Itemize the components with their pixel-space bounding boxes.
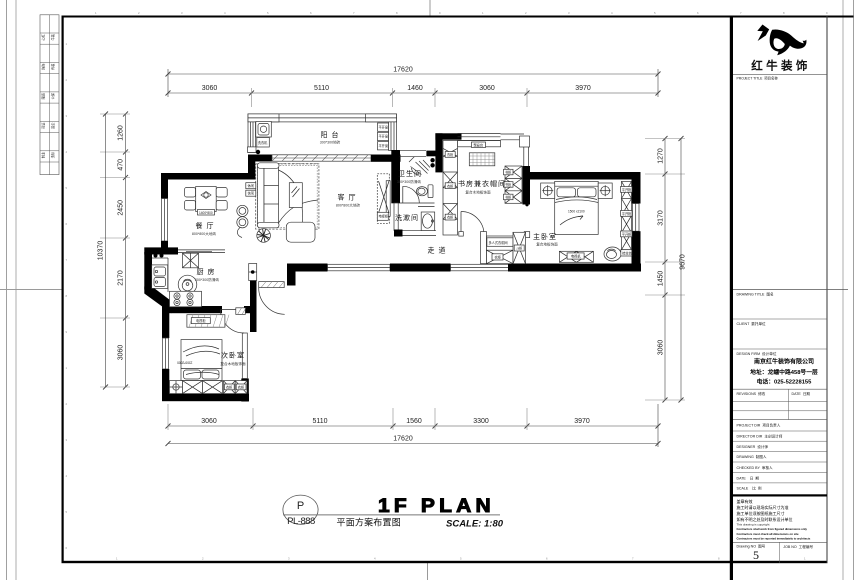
svg-text:REVISIONS 修改: REVISIONS 修改 <box>737 391 766 396</box>
svg-text:3060: 3060 <box>657 340 664 356</box>
svg-text:休闲: 休闲 <box>248 191 254 196</box>
svg-text:衣柜: 衣柜 <box>447 152 454 157</box>
svg-text:Contractors shall work from fi: Contractors shall work from figured dime… <box>737 527 808 531</box>
svg-text:DIRECTOR DIR 主创设计师: DIRECTOR DIR 主创设计师 <box>737 434 783 439</box>
svg-text:1260: 1260 <box>118 125 125 141</box>
svg-text:1270: 1270 <box>657 148 664 164</box>
svg-text:800*800大地砖: 800*800大地砖 <box>336 203 361 208</box>
svg-text:Contractors must be reported i: Contractors must be reported immediately… <box>737 537 811 541</box>
svg-text:平面方案布置图: 平面方案布置图 <box>337 517 401 528</box>
svg-text:造标: 造标 <box>50 151 55 158</box>
svg-text:地址：龙蟠中路458号一层: 地址：龙蟠中路458号一层 <box>750 368 818 376</box>
svg-text:5: 5 <box>753 548 759 562</box>
svg-text:书柜: 书柜 <box>505 182 512 187</box>
svg-text:复合木地板饰面: 复合木地板饰面 <box>465 190 491 195</box>
svg-text:衣柜: 衣柜 <box>226 385 233 390</box>
svg-text:牛装: 牛装 <box>50 33 55 40</box>
svg-text:电视柜: 电视柜 <box>196 318 206 323</box>
svg-text:衣柜: 衣柜 <box>495 255 502 260</box>
svg-text:平开柜: 平开柜 <box>622 187 632 192</box>
svg-text:南京红牛装饰有限公司: 南京红牛装饰有限公司 <box>754 358 814 366</box>
svg-text:书柜: 书柜 <box>505 195 512 200</box>
svg-text:300*300防滑砖: 300*300防滑砖 <box>397 179 422 184</box>
svg-text:厨 房: 厨 房 <box>197 267 216 276</box>
svg-text:休闲: 休闲 <box>248 183 254 188</box>
svg-text:1560: 1560 <box>406 418 422 425</box>
svg-text:PROJECT TITLE 项目名称: PROJECT TITLE 项目名称 <box>737 76 779 81</box>
svg-text:施工时请以现场实际尺寸为准: 施工时请以现场实际尺寸为准 <box>737 504 789 510</box>
svg-text:5110: 5110 <box>314 85 329 92</box>
svg-text:1400*800: 1400*800 <box>199 211 213 215</box>
svg-text:心红: 心红 <box>41 33 46 40</box>
svg-text:走 道: 走 道 <box>428 246 447 255</box>
svg-text:300*300防滑砖: 300*300防滑砖 <box>195 277 220 282</box>
svg-text:PL-888: PL-888 <box>287 516 315 527</box>
svg-text:平开柜: 平开柜 <box>622 232 632 237</box>
svg-text:客 厅: 客 厅 <box>338 193 357 202</box>
svg-text:DRAWING TITLE 图名: DRAWING TITLE 图名 <box>737 292 775 297</box>
svg-text:SCALE: 1:80: SCALE: 1:80 <box>446 519 504 530</box>
svg-text:衣柜: 衣柜 <box>447 183 454 188</box>
svg-text:公保: 公保 <box>50 92 55 99</box>
svg-text:DESIGNER 设计师: DESIGNER 设计师 <box>737 444 769 449</box>
svg-text:300*300地砖: 300*300地砖 <box>320 140 341 145</box>
svg-text:复合木地板饰面: 复合木地板饰面 <box>220 361 246 366</box>
svg-text:平开窗: 平开窗 <box>379 134 389 139</box>
svg-text:阳 台: 阳 台 <box>321 130 340 139</box>
svg-text:红牛装饰: 红牛装饰 <box>751 59 811 73</box>
svg-text:电话：025-52228155: 电话：025-52228155 <box>757 378 813 386</box>
svg-text:9670: 9670 <box>680 254 687 270</box>
svg-text:书房兼衣帽间: 书房兼衣帽间 <box>458 179 506 188</box>
svg-text:书柜: 书柜 <box>505 170 512 175</box>
svg-text:3060: 3060 <box>118 345 125 361</box>
svg-text:CHECKED BY 审核人: CHECKED BY 审核人 <box>737 465 774 470</box>
svg-text:施工单位须按图纸施工尺寸: 施工单位须按图纸施工尺寸 <box>737 510 785 516</box>
svg-text:2450: 2450 <box>118 200 125 216</box>
svg-text:SCALE 比 例: SCALE 比 例 <box>737 486 762 491</box>
svg-text:限质: 限质 <box>41 92 46 99</box>
svg-text:多人式衣帽间: 多人式衣帽间 <box>489 240 508 245</box>
svg-text:17620: 17620 <box>393 67 413 74</box>
svg-text:洗衣机: 洗衣机 <box>258 140 268 145</box>
svg-text:CLIENT 委托单位: CLIENT 委托单位 <box>737 321 767 326</box>
svg-text:3300: 3300 <box>473 418 489 425</box>
svg-text:次卧室: 次卧室 <box>221 351 245 360</box>
svg-text:3970: 3970 <box>574 418 590 425</box>
svg-text:This drawing is copyright: This drawing is copyright <box>737 523 770 527</box>
svg-text:1500*2000: 1500*2000 <box>177 360 193 364</box>
svg-text:监企: 监企 <box>50 122 55 129</box>
svg-text:平开窗: 平开窗 <box>379 124 389 129</box>
svg-text:Drawing NO 图号: Drawing NO 图号 <box>737 544 766 549</box>
svg-text:DATE 日 期: DATE 日 期 <box>737 475 760 480</box>
svg-text:复合地板饰面: 复合地板饰面 <box>536 242 558 247</box>
svg-text:电视机: 电视机 <box>571 254 581 259</box>
svg-text:飘窗台: 飘窗台 <box>474 142 484 147</box>
svg-text:P: P <box>297 500 304 512</box>
svg-text:3170: 3170 <box>657 210 664 226</box>
svg-text:2170: 2170 <box>118 270 125 286</box>
svg-text:3060: 3060 <box>201 418 217 425</box>
svg-text:衣柜: 衣柜 <box>447 215 454 220</box>
svg-text:DATE 日期: DATE 日期 <box>792 391 811 396</box>
svg-text:餐 厅: 餐 厅 <box>196 221 215 230</box>
svg-text:平开柜: 平开柜 <box>622 211 632 216</box>
svg-text:DESIGN FIRM 设计单位: DESIGN FIRM 设计单位 <box>737 351 777 356</box>
svg-text:有装: 有装 <box>50 63 55 70</box>
svg-text:斗柜: 斗柜 <box>516 246 523 251</box>
svg-text:制业: 制业 <box>41 152 46 158</box>
svg-text:1F PLAN: 1F PLAN <box>378 496 495 517</box>
svg-text:470: 470 <box>118 159 125 171</box>
svg-text:3970: 3970 <box>575 85 591 92</box>
svg-text:1460: 1460 <box>407 85 423 92</box>
svg-text:如有不明之处及时联系设计单位: 如有不明之处及时联系设计单位 <box>737 516 793 522</box>
svg-text:饰饰: 饰饰 <box>41 64 46 70</box>
svg-text:衣柜: 衣柜 <box>238 385 245 390</box>
svg-text:PROJECT DIR 项目负责人: PROJECT DIR 项目负责人 <box>737 422 781 427</box>
svg-text:盖章有效: 盖章有效 <box>737 498 753 504</box>
svg-text:800*800大地砖: 800*800大地砖 <box>192 231 217 236</box>
svg-text:3060: 3060 <box>202 85 218 92</box>
svg-text:卫生间: 卫生间 <box>398 169 422 178</box>
svg-text:梳妆台: 梳妆台 <box>622 251 632 256</box>
svg-text:平开窗: 平开窗 <box>379 143 389 148</box>
svg-text:17620: 17620 <box>393 436 413 443</box>
svg-text:3060: 3060 <box>479 85 495 92</box>
svg-text:DRAWING 制图人: DRAWING 制图人 <box>737 454 767 459</box>
svg-text:1450: 1450 <box>657 271 664 287</box>
svg-text:10370: 10370 <box>98 241 105 261</box>
svg-text:JOB NO 工程编号: JOB NO 工程编号 <box>783 544 813 549</box>
svg-text:洗漱间: 洗漱间 <box>395 213 419 222</box>
svg-text:Contractors must check all dim: Contractors must check all dimensions on… <box>737 532 799 536</box>
svg-text:电视柜: 电视柜 <box>379 214 389 219</box>
svg-text:5110: 5110 <box>312 418 327 425</box>
svg-text:司证: 司证 <box>41 122 46 129</box>
svg-text:主卧室: 主卧室 <box>533 232 557 241</box>
svg-text:1500 x2100: 1500 x2100 <box>568 210 585 214</box>
